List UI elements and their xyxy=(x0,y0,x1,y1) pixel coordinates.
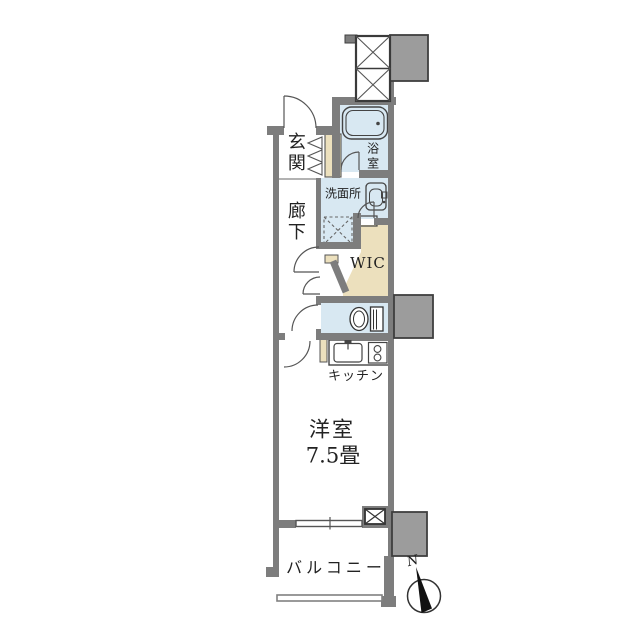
entrance-label: 玄関 xyxy=(285,132,305,174)
bathtub-drain xyxy=(376,122,380,126)
western-room-size-label: 7.5畳 xyxy=(306,444,360,467)
floorplan-canvas: 玄関 廊下 浴室 洗面所 WIC キッチン 洋室 7.5畳 バルコニー N xyxy=(0,0,640,640)
door-jamb-kitchen xyxy=(320,338,327,362)
wic-door-lower xyxy=(303,277,320,294)
hallway-label: 廊下 xyxy=(285,201,305,243)
entrance-door xyxy=(284,96,316,128)
block-middle xyxy=(394,295,433,338)
folding-door xyxy=(308,137,322,175)
kitchen-counter xyxy=(329,340,390,366)
wic-chamfer-wall xyxy=(333,261,346,292)
bathroom-label: 浴室 xyxy=(365,142,378,172)
wic-door-upper xyxy=(294,247,319,272)
balcony-label: バルコニー xyxy=(286,559,386,577)
common-area-blocks xyxy=(390,35,433,556)
washer-nook-floor xyxy=(321,219,356,243)
western-room-label: 洋室 xyxy=(309,418,355,441)
block-bottom xyxy=(392,512,427,556)
duct-box xyxy=(365,509,385,524)
wic-label: WIC xyxy=(350,255,386,272)
main-room-window xyxy=(296,521,362,527)
pipe-shaft xyxy=(356,36,390,101)
floorplan-drawing xyxy=(0,0,640,640)
toilet-door xyxy=(292,305,318,331)
balcony-railing xyxy=(277,595,382,601)
block-top xyxy=(390,35,428,81)
compass xyxy=(408,567,441,613)
kitchen-label: キッチン xyxy=(328,370,384,384)
washroom-label: 洗面所 xyxy=(325,187,361,200)
main-room-door xyxy=(284,341,310,367)
kitchen-faucet xyxy=(345,340,352,344)
